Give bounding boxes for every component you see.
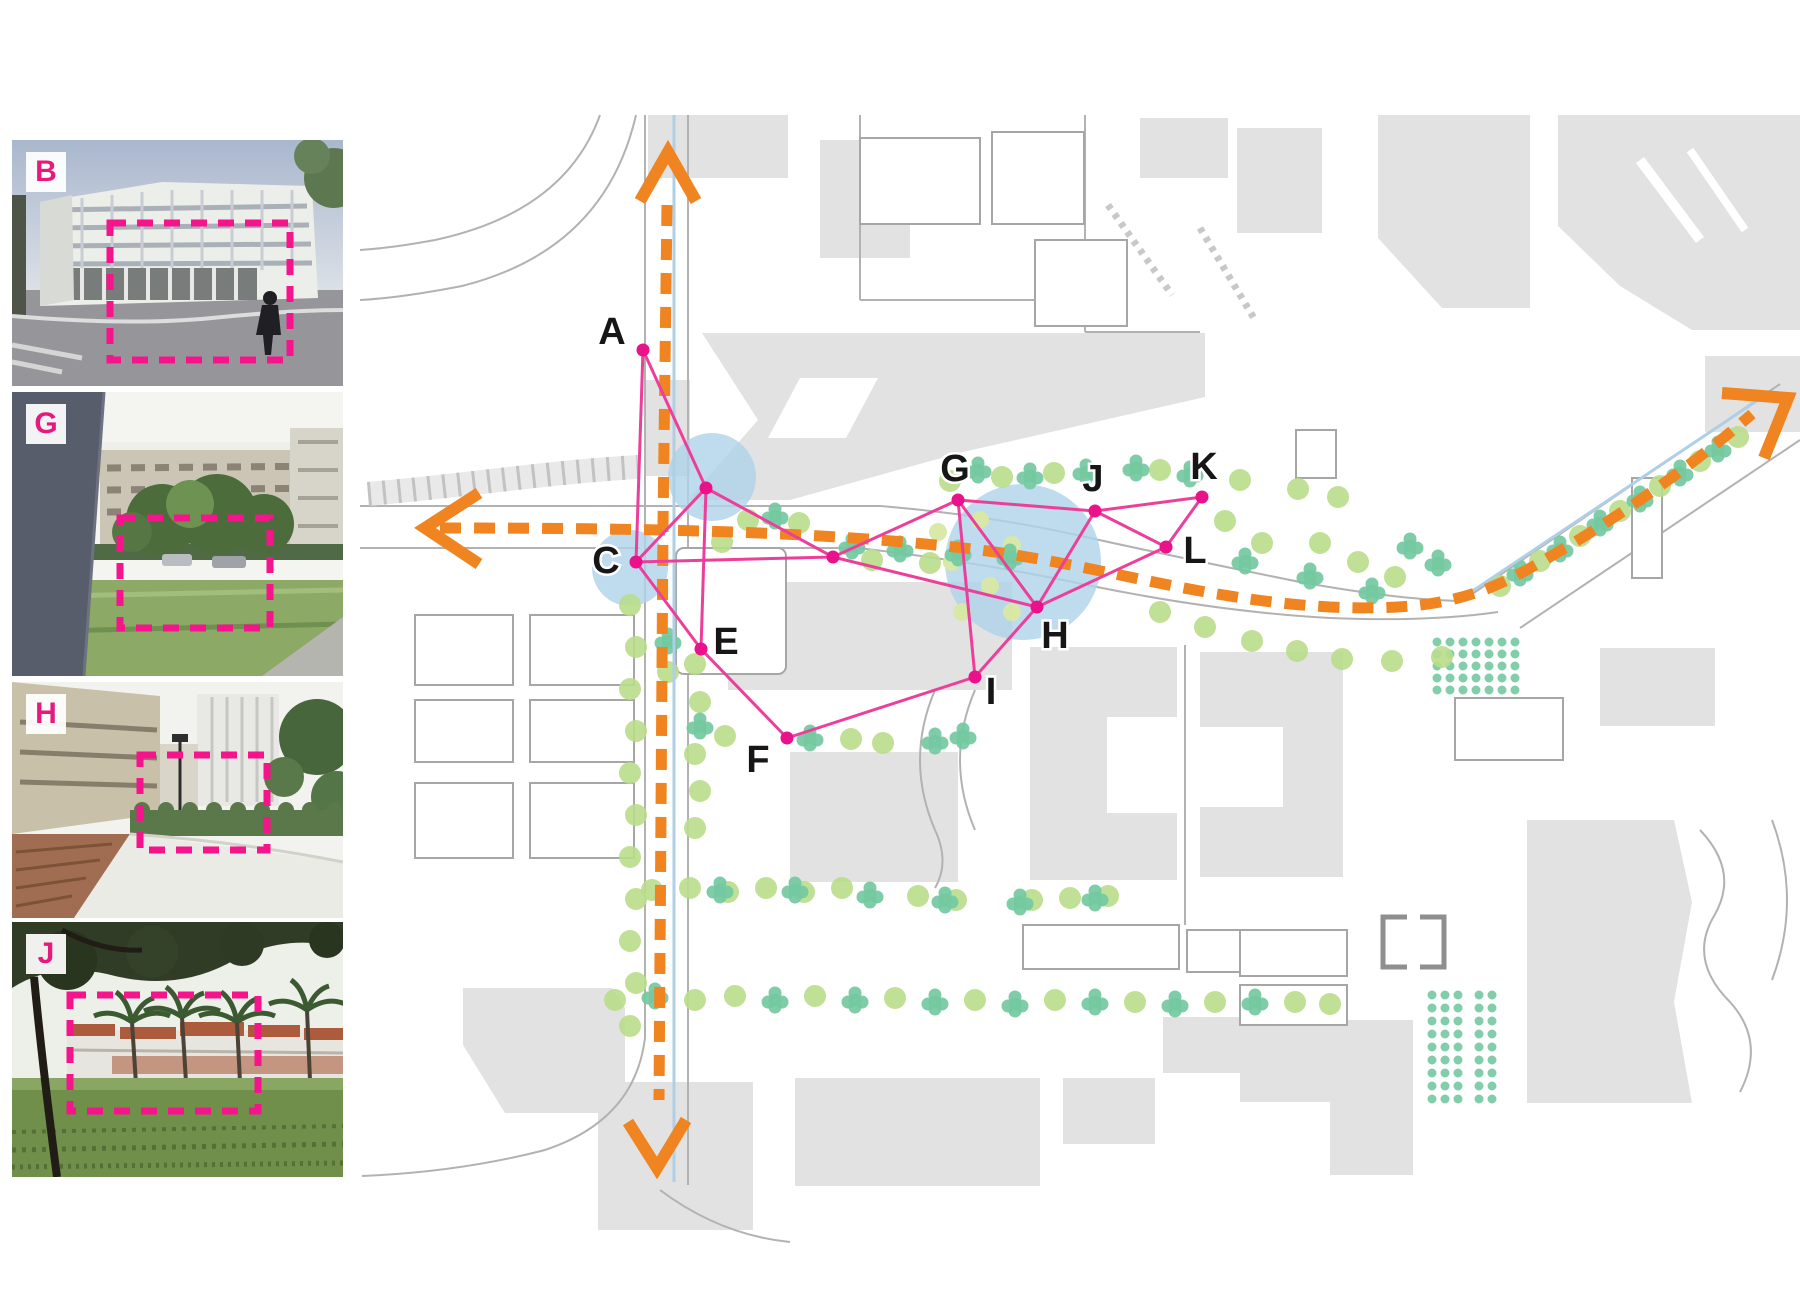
map-node-label-e: E: [713, 621, 738, 663]
figure-canvas: B: [0, 0, 1800, 1314]
photo-b: B: [12, 140, 343, 386]
campus-map: ACEFGHIJKL: [360, 0, 1800, 1314]
photo-g: G: [12, 392, 343, 676]
map-node-label-a: A: [598, 311, 625, 353]
map-node-label-c: C: [592, 540, 619, 582]
map-node-label-l: L: [1183, 530, 1206, 572]
photo-label-h: H: [26, 694, 66, 734]
photo-label-g: G: [26, 404, 66, 444]
map-node-label-f: F: [746, 739, 769, 781]
campus-map-svg: ACEFGHIJKL: [360, 0, 1800, 1314]
map-node-label-h: H: [1041, 615, 1068, 657]
map-node-label-j: J: [1082, 458, 1103, 500]
photo-j: J: [12, 922, 343, 1177]
photo-h: H: [12, 682, 343, 918]
map-node-label-i: I: [986, 671, 997, 713]
map-node-label-k: K: [1190, 446, 1218, 488]
photo-label-j: J: [26, 934, 66, 974]
map-node-label-g: G: [940, 448, 970, 490]
photo-label-b: B: [26, 152, 66, 192]
